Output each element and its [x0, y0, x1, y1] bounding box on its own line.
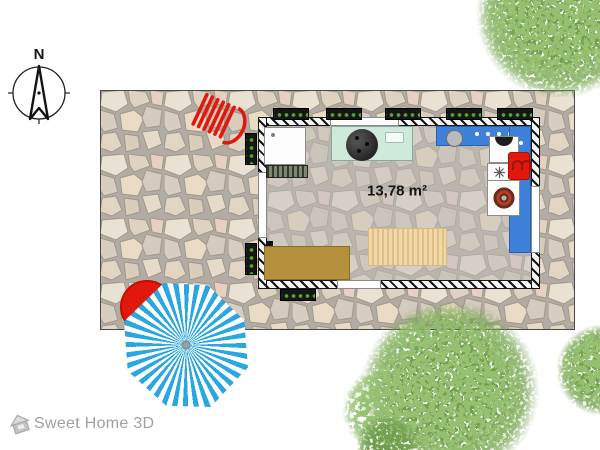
window-flower-box[interactable] [446, 108, 482, 120]
radiator[interactable] [266, 165, 308, 178]
counter-sink [446, 130, 463, 147]
wall-bottom[interactable] [258, 280, 540, 289]
window-right[interactable] [531, 186, 540, 253]
watermark-text: Sweet Home 3D [34, 415, 154, 433]
window-flower-box[interactable] [280, 289, 316, 301]
sweet-home-3d-logo-icon [8, 412, 32, 436]
fridge-cabinet[interactable] [264, 127, 306, 165]
chair-mark [521, 160, 532, 170]
washing-machine[interactable] [331, 126, 413, 161]
window-flower-box[interactable] [245, 243, 257, 275]
sink-basin-arc [495, 137, 513, 146]
window-flower-box[interactable] [385, 108, 421, 120]
window-flower-box[interactable] [273, 108, 309, 120]
washer-detergent-tray [385, 132, 404, 143]
table-knob [267, 241, 273, 246]
window-flower-box[interactable] [497, 108, 533, 120]
counter-dot [519, 141, 523, 145]
rug[interactable] [368, 228, 447, 266]
room-area-label: 13,78 m² [367, 183, 427, 200]
tree-top-right[interactable] [465, 0, 600, 97]
red-chair[interactable] [508, 152, 530, 180]
washer-drum [346, 129, 378, 161]
window-flower-box[interactable] [326, 108, 362, 120]
fridge-handle-dot [271, 133, 275, 137]
window-flower-box[interactable] [245, 133, 257, 165]
compass-center-dot [37, 91, 40, 94]
deck-chair-slats [190, 92, 251, 147]
counter-dot [475, 132, 479, 136]
drum-dot [355, 136, 359, 140]
tree-bottom-group[interactable] [340, 292, 600, 450]
burner-ring [493, 187, 515, 209]
sideboard-table[interactable] [264, 246, 350, 280]
window-left[interactable] [258, 172, 267, 238]
compass[interactable]: N [6, 40, 74, 126]
plan-canvas[interactable]: 13,78 m² N [0, 0, 600, 450]
room[interactable]: 13,78 m² [258, 117, 540, 289]
drum-dot [357, 149, 361, 153]
deck-chair[interactable] [185, 92, 251, 150]
door-bottom[interactable] [337, 280, 381, 289]
burner-unit[interactable] [487, 180, 520, 216]
compass-north-label: N [34, 46, 45, 63]
tree-canopy-light [478, 0, 600, 93]
parasol-pole-hub [182, 341, 191, 350]
drum-dot [365, 142, 369, 146]
